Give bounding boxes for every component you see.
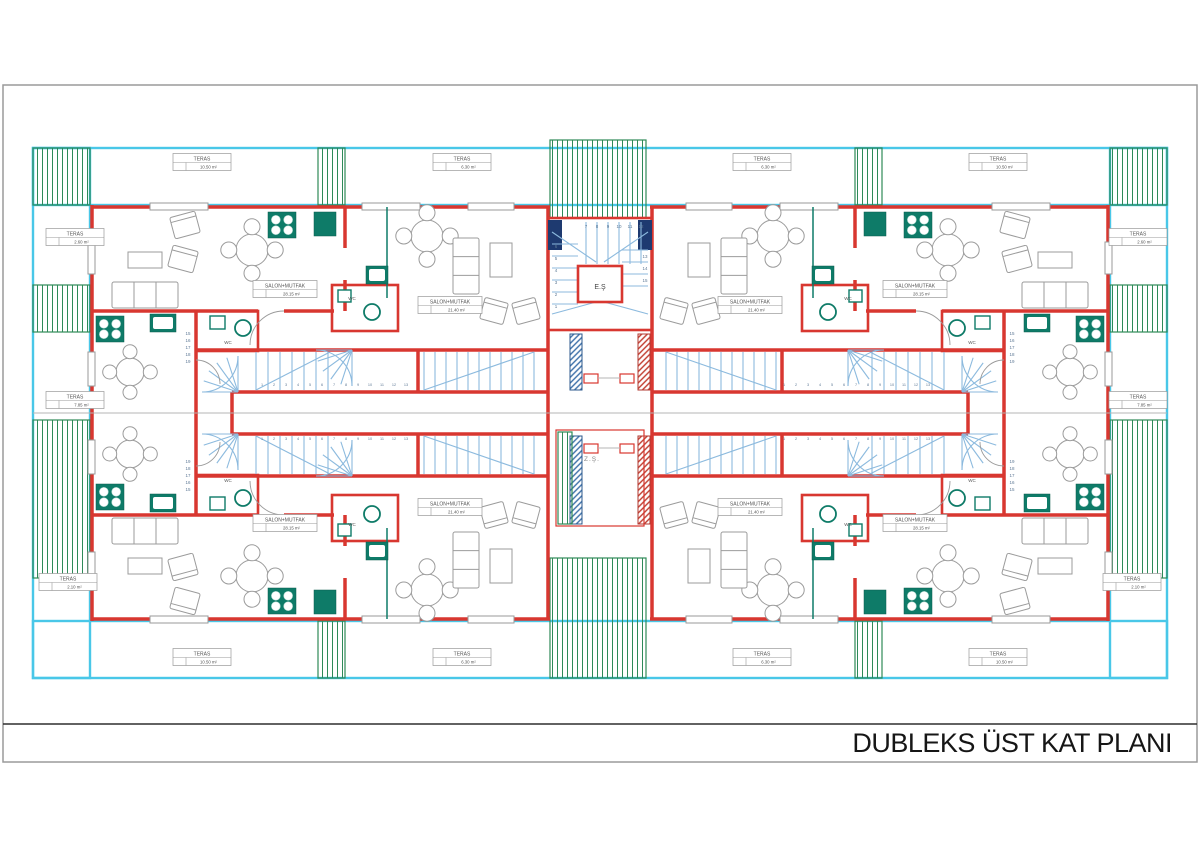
armchair [1000,587,1031,615]
light-well-deck [558,432,572,524]
sink-bowl [153,497,173,509]
teras-label-area: 10.50 m² [996,660,1014,665]
door-swing [980,442,1004,466]
core-step-number: 3 [555,280,558,285]
stove-burner [1079,487,1088,496]
stair-step-number: 9 [357,383,359,387]
armchair [692,297,721,324]
wash-basin [949,320,965,336]
window [362,616,420,623]
sink-bowl [153,317,173,329]
shaft-column [638,334,650,390]
coffee-table [128,558,162,574]
terrace-deck-hatch [1110,148,1167,205]
salon-mutfak-label-area: 21.40 m² [748,308,766,313]
stair-step-number: 17 [185,473,191,478]
armchair-body [692,501,721,528]
stove-burner [112,330,121,339]
sink-bowl [815,545,831,557]
stair-step-number: 13 [404,383,408,387]
wash-basin [820,506,836,522]
salon-mutfak-label-title: SALON+MUTFAK [730,300,771,306]
armchair [1002,553,1033,581]
stair-step-number: 8 [867,437,869,441]
armchair [170,211,201,239]
stair-step-number: 5 [309,383,311,387]
stair-step-number: 11 [380,437,384,441]
stair-tread [204,434,238,445]
teras-label-title: TERAS [454,157,471,163]
side-table [490,549,512,583]
chair [221,568,237,584]
stair-step-number: 4 [819,437,821,441]
terrace-deck-hatch [1110,420,1167,578]
armchair [660,297,689,324]
stove-burner [271,215,280,224]
stair-step-number: 10 [368,437,372,441]
chair [765,605,781,621]
core-step-number: 10 [616,224,622,229]
teras-label-area: 2.10 m² [67,585,82,590]
stair-step-number: 15 [1009,331,1015,336]
plan-layer: TERAS10.50 m²TERAS6.30 m²TERAS6.30 m²TER… [33,140,1167,678]
salon-mutfak-label-title: SALON+MUTFAK [265,284,306,290]
armchair [480,297,509,324]
dining-table [116,358,144,386]
core-step-number: 7 [585,224,588,229]
chair [244,265,260,281]
chair [244,545,260,561]
shaft-label: Z.Ş. [584,456,600,463]
dining-table [411,574,443,606]
tie-beam [620,444,634,453]
stove-burner [99,487,108,496]
teras-label-area: 2.60 m² [74,240,89,245]
stove-burner [1079,319,1088,328]
armchair-body [168,245,199,273]
chair [1043,447,1057,461]
stair-step-number: 5 [831,437,833,441]
elevator-shaft-label: E.Ş [594,284,606,291]
teras-label-title: TERAS [754,652,771,658]
chair [963,568,979,584]
stair-step-number: 8 [867,383,869,387]
terrace-deck-hatch [33,148,90,205]
stair-step-number: 11 [380,383,384,387]
stove-burner [1092,498,1101,507]
chair [917,568,933,584]
stair-step-number: 16 [185,480,191,485]
page: { "title_block": { "title": "DUBLEKS ÜST… [0,0,1200,848]
stove-burner [920,602,929,611]
chair [103,365,117,379]
stair-tread [962,381,996,392]
quadrant-2 [88,412,550,623]
chair [765,205,781,221]
side-table [688,243,710,277]
terrace-deck-hatch [550,140,646,218]
stair-step-number: 18 [185,352,191,357]
chair [244,219,260,235]
wash-basin [949,490,965,506]
stair-step-number: 18 [1009,466,1015,471]
core-step-number: 2 [555,292,558,297]
armchair-body [692,297,721,324]
stove [96,484,124,510]
stair-step-number: 4 [297,383,299,387]
chair [765,251,781,267]
stove-burner [284,226,293,235]
stair-step-number: 4 [297,437,299,441]
terrace-deck-hatch [318,621,345,678]
sink-bowl [1027,497,1047,509]
teras-label-title: TERAS [454,652,471,658]
window [1105,440,1112,474]
chair [123,345,137,359]
wash-basin [235,490,251,506]
dining-table [932,560,964,592]
stair-step-number: 2 [795,437,797,441]
sink-bowl [369,269,385,281]
salon-mutfak-label-title: SALON+MUTFAK [895,284,936,290]
door-swing [916,311,950,345]
chair [143,365,157,379]
salon-mutfak-label-area: 21.40 m² [448,308,466,313]
wash-basin [364,304,380,320]
teras-label-area: 6.30 m² [461,165,476,170]
stair-step-number: 13 [404,437,408,441]
salon-mutfak-label-area: 21.40 m² [448,510,466,515]
drawing-title: DUBLEKS ÜST KAT PLANI [852,728,1172,758]
stair-step-number: 10 [368,383,372,387]
window [468,616,514,623]
stair-step-number: 8 [345,437,347,441]
stair-tread [962,434,973,468]
sofa [1022,282,1088,308]
kitchen-appliance [864,590,886,614]
wc-cistern [975,497,990,510]
wc-label: WC [224,340,232,345]
tie-beam [584,374,598,383]
stove-burner [284,215,293,224]
window [780,616,838,623]
stove-burner [1092,487,1101,496]
stair-step-number: 12 [392,437,396,441]
door-swing [196,360,220,384]
tie-beam [620,374,634,383]
terrace-deck-hatch [33,420,90,578]
stair-step-number: 16 [1009,480,1015,485]
window [88,440,95,474]
stair-step-number: 11 [902,437,906,441]
stove-burner [920,226,929,235]
window [88,352,95,386]
stair-tread [341,350,352,384]
stove-burner [1092,330,1101,339]
window [686,203,732,210]
armchair [170,587,201,615]
sofa [112,282,178,308]
window [468,203,514,210]
stove-burner [920,591,929,600]
terrace-deck-hatch [855,621,882,678]
wc-label: WC [968,478,976,483]
teras-label-area: 2.10 m² [1131,585,1146,590]
kitchen-appliance [314,212,336,236]
teras-label-title: TERAS [60,577,77,583]
dining-table [757,574,789,606]
chair [1063,345,1077,359]
stove-burner [271,602,280,611]
stove-burner [907,215,916,224]
stair-step-number: 6 [843,437,845,441]
teras-label-title: TERAS [990,157,1007,163]
teras-label-area: 7.85 m² [1137,403,1152,408]
salon-mutfak-label-area: 28.15 m² [283,526,301,531]
armchair-body [512,501,541,528]
dining-table [411,220,443,252]
stair-flight-line [256,352,330,390]
stair-step-number: 15 [185,487,191,492]
chair [940,545,956,561]
stair-step-number: 12 [392,383,396,387]
salon-mutfak-label-title: SALON+MUTFAK [265,518,306,524]
chair [123,385,137,399]
door-swing [980,360,1004,384]
stair-step-number: 15 [185,331,191,336]
side-table [490,243,512,277]
stove-burner [907,226,916,235]
stove-burner [1092,319,1101,328]
chair [1083,365,1097,379]
stair-step-number: 12 [914,437,918,441]
wc-label: WC [968,340,976,345]
wc-label: WC [348,522,356,527]
stair-step-number: 5 [309,437,311,441]
stove-burner [284,591,293,600]
stair-flight-line [870,436,944,474]
armchair-body [170,211,201,239]
wc-cistern [210,316,225,329]
coffee-table [1038,252,1072,268]
teras-label-area: 10.50 m² [996,165,1014,170]
wash-basin [235,320,251,336]
armchair [1002,245,1033,273]
salon-mutfak-label-area: 28.15 m² [913,292,931,297]
stair-flight-line [870,352,944,390]
salon-mutfak-label-title: SALON+MUTFAK [730,502,771,508]
stove [904,588,932,614]
teras-label-title: TERAS [990,652,1007,658]
stair-step-number: 1 [261,383,263,387]
coffee-table [128,252,162,268]
teras-label-area: 6.30 m² [761,165,776,170]
stair-step-number: 3 [285,437,287,441]
stair-step-number: 16 [1009,338,1015,343]
teras-label-title: TERAS [67,232,84,238]
window [992,203,1050,210]
armchair-body [1002,553,1033,581]
chair [1083,447,1097,461]
sink-bowl [1027,317,1047,329]
armchair [512,501,541,528]
chair [396,582,412,598]
chair [267,242,283,258]
door-swing [916,481,950,515]
stove-burner [1079,498,1088,507]
chair [123,467,137,481]
armchair-body [1000,211,1031,239]
armchair [168,245,199,273]
stair-tread [962,358,973,392]
core-step-number: 11 [628,224,633,229]
stair-step-number: 18 [1009,352,1015,357]
armchair [168,553,199,581]
armchair-body [512,297,541,324]
window [150,203,208,210]
chair [419,251,435,267]
wc-label: WC [348,296,356,301]
stove-burner [112,498,121,507]
terrace-deck-hatch [550,558,646,678]
stair-flight-line [256,436,330,474]
stair-step-number: 6 [321,383,323,387]
core-step-number: 9 [607,224,610,229]
coffee-table [1038,558,1072,574]
stair-step-number: 8 [345,383,347,387]
teras-label-area: 6.30 m² [761,660,776,665]
core-step-number: 13 [642,254,648,259]
kitchen-appliance [864,212,886,236]
stair-step-number: 7 [855,383,857,387]
stair-step-number: 11 [902,383,906,387]
chair [1063,427,1077,441]
teras-label-area: 10.50 m² [200,660,218,665]
stair-tread [341,442,352,476]
terrace-deck-hatch [1110,285,1167,332]
stair-step-number: 4 [819,383,821,387]
terrace-deck-hatch [33,285,90,332]
sink-bowl [815,269,831,281]
stair-flight-line [604,302,648,314]
stove-burner [271,226,280,235]
armchair-body [168,553,199,581]
core-step-number: 12 [638,224,644,229]
stove-burner [271,591,280,600]
stair-step-number: 2 [273,383,275,387]
stove-burner [99,319,108,328]
stair-tread [204,381,238,392]
stair-step-number: 17 [1009,473,1015,478]
chair [143,447,157,461]
stove [268,588,296,614]
armchair-body [1002,245,1033,273]
stair-step-number: 9 [879,383,881,387]
stove-burner [1079,330,1088,339]
dining-table [932,234,964,266]
stair-step-number: 12 [914,383,918,387]
stair-step-number: 15 [1009,487,1015,492]
chair [940,219,956,235]
stove-burner [99,498,108,507]
core-step-number: 8 [596,224,599,229]
window [1105,352,1112,386]
stair-tread [227,358,238,392]
armchair [660,501,689,528]
dining-table [116,440,144,468]
stair-step-number: 10 [890,437,894,441]
door-swing [196,442,220,466]
chair [1063,467,1077,481]
dining-table [1056,358,1084,386]
salon-mutfak-label-area: 28.15 m² [283,292,301,297]
armchair [1000,211,1031,239]
stove-burner [284,602,293,611]
stove [268,212,296,238]
chair [788,228,804,244]
armchair-body [660,501,689,528]
stair-step-number: 19 [1009,359,1015,364]
armchair-body [480,297,509,324]
stove [904,212,932,238]
stair-step-number: 2 [795,383,797,387]
teras-label-area: 2.60 m² [1137,240,1152,245]
chair [123,427,137,441]
stove-burner [112,319,121,328]
chair [788,582,804,598]
teras-label-title: TERAS [1130,232,1147,238]
stove-burner [112,487,121,496]
wc-label: WC [844,296,852,301]
chair [963,242,979,258]
sink-bowl [369,545,385,557]
window [686,616,732,623]
quadrant-3 [650,412,1112,623]
core-step-number: 15 [642,278,648,283]
teras-label-title: TERAS [194,157,211,163]
chair [396,228,412,244]
stove [1076,316,1104,342]
window [150,616,208,623]
stair-step-number: 10 [890,383,894,387]
door-swing [250,311,284,345]
stair-step-number: 7 [855,437,857,441]
salon-mutfak-label-title: SALON+MUTFAK [430,502,471,508]
chair [221,242,237,258]
tie-beam [584,444,598,453]
armchair-body [480,501,509,528]
stair-step-number: 6 [843,383,845,387]
side-table [688,549,710,583]
wc-label: WC [844,522,852,527]
stove-burner [907,602,916,611]
stair-step-number: 5 [831,383,833,387]
stove [96,316,124,342]
salon-mutfak-label-title: SALON+MUTFAK [430,300,471,306]
stair-step-number: 2 [273,437,275,441]
teras-label-area: 10.50 m² [200,165,218,170]
stair-step-number: 6 [321,437,323,441]
chair [419,605,435,621]
window [362,203,420,210]
salon-mutfak-label-area: 21.40 m² [748,510,766,515]
dining-table [236,234,268,266]
stair-step-number: 3 [285,383,287,387]
door-swing [250,481,284,515]
salon-mutfak-label-title: SALON+MUTFAK [895,518,936,524]
stair-tread [962,434,996,445]
dining-table [757,220,789,252]
